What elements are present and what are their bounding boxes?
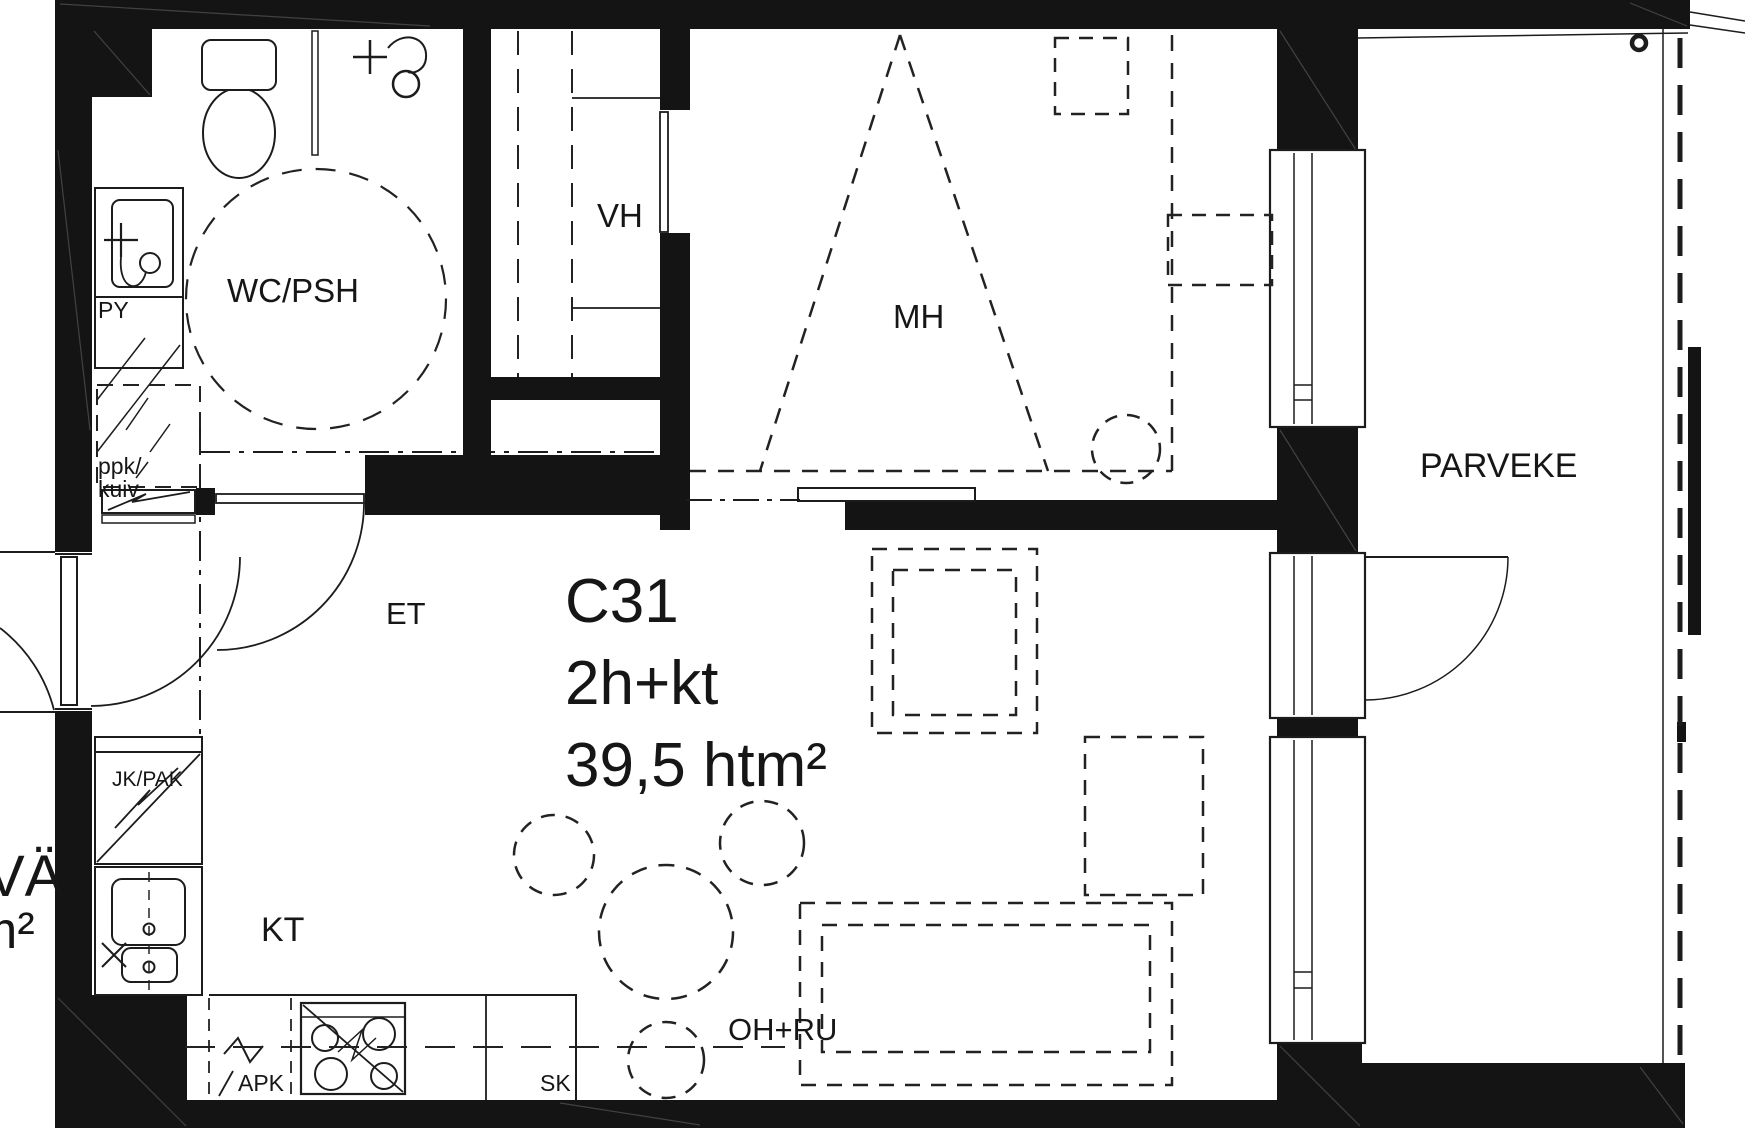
dining-chair-dashed [628, 1022, 704, 1098]
shower-hose-icon [388, 37, 426, 72]
shower-head-icon [393, 71, 419, 97]
apartment-type: 2h+kt [565, 649, 718, 718]
label-kitchen: KT [261, 911, 304, 949]
balcony-drain-icon [1632, 36, 1646, 50]
label-washbasin: PY [98, 297, 129, 323]
entry-door-swing-arc [91, 557, 240, 706]
wall-vh-right-upper [660, 29, 690, 110]
shower-screen [312, 31, 318, 155]
dining-chair-dashed [720, 801, 804, 885]
label-dishwasher: APK [238, 1070, 285, 1096]
bedroom-furniture [690, 35, 1272, 483]
bathroom-door [216, 494, 364, 650]
label-balcony: PARVEKE [1420, 447, 1577, 485]
label-closet: VH [597, 197, 643, 234]
dishwasher-zigzag-icon [224, 1038, 263, 1062]
entry-door [0, 552, 240, 712]
sofa-dashed-outer [800, 903, 1172, 1085]
walls [55, 0, 1701, 1128]
bed-duvet-triangle [760, 35, 900, 471]
label-laundry-2: kuiv [98, 476, 139, 502]
neighbor-door-arc [0, 628, 54, 710]
label-entry: ET [386, 596, 426, 631]
wall-vh-bottom [463, 377, 683, 400]
wall-bottom-balcony [1358, 1063, 1685, 1128]
bathroom-door-leaf [216, 494, 364, 503]
pillow-dashed [1055, 38, 1128, 114]
apartment-id: C31 [565, 567, 679, 636]
closet-door-leaf [660, 112, 668, 232]
sofa-dashed-inner [822, 925, 1150, 1052]
edge-line-top-2 [1690, 25, 1745, 33]
label-bathroom: WC/PSH [227, 272, 359, 309]
dishwasher-slash [219, 1071, 233, 1096]
sliding-door-panel [798, 488, 975, 501]
window-frame [1270, 737, 1365, 1043]
label-fridge: JK/PAK [112, 768, 183, 791]
dining-table-dashed [599, 865, 733, 999]
wall-pillar-small-right [1277, 718, 1358, 737]
tv-bench-dashed [1085, 737, 1203, 895]
toilet-icon [203, 88, 275, 178]
label-cabinet: SK [540, 1070, 571, 1096]
wall-hall-bottom [365, 455, 683, 515]
counter-edge [95, 737, 202, 752]
label-bedroom: MH [893, 298, 944, 335]
window-frame [1270, 150, 1365, 427]
entry-door-leaf [61, 557, 77, 705]
bed-duvet-triangle [900, 35, 1048, 471]
bedroom-window [1270, 150, 1365, 427]
apartment-area: 39,5 htm² [565, 731, 827, 800]
bedside-table-dashed [1168, 215, 1272, 285]
laundry-slash [150, 424, 170, 452]
floor-plan: WC/PSH VH MH ET KT OH+RU PARVEKE C31 2h+… [0, 0, 1745, 1128]
wall-door-nub [196, 488, 215, 515]
armchair-dashed-outer [872, 549, 1037, 733]
balcony-door-swing-arc [1365, 557, 1508, 700]
label-partial-neighbor: VÄ [0, 844, 64, 909]
balcony-structure [1358, 12, 1745, 1063]
toilet-tank-icon [202, 40, 276, 90]
sliding-door [686, 488, 975, 501]
label-living: OH+RU [728, 1012, 837, 1047]
wall-bedroom-bottom [845, 500, 1277, 530]
laundry-slash [126, 398, 148, 430]
armchair-dashed-inner [893, 570, 1016, 715]
stool-dashed [1092, 415, 1160, 483]
label-partial-area: m² [0, 902, 35, 960]
balcony-mullion [1688, 347, 1701, 635]
dining-chair-dashed [514, 815, 594, 895]
balcony-door [1270, 553, 1508, 718]
balcony-door-frame [1270, 553, 1365, 718]
wall-top [55, 0, 1690, 29]
wall-bottom-main [55, 1100, 1362, 1128]
living-window [1270, 737, 1365, 1043]
edge-line-top-1 [1690, 12, 1745, 21]
electrical-cabinet-shelf [102, 515, 195, 523]
